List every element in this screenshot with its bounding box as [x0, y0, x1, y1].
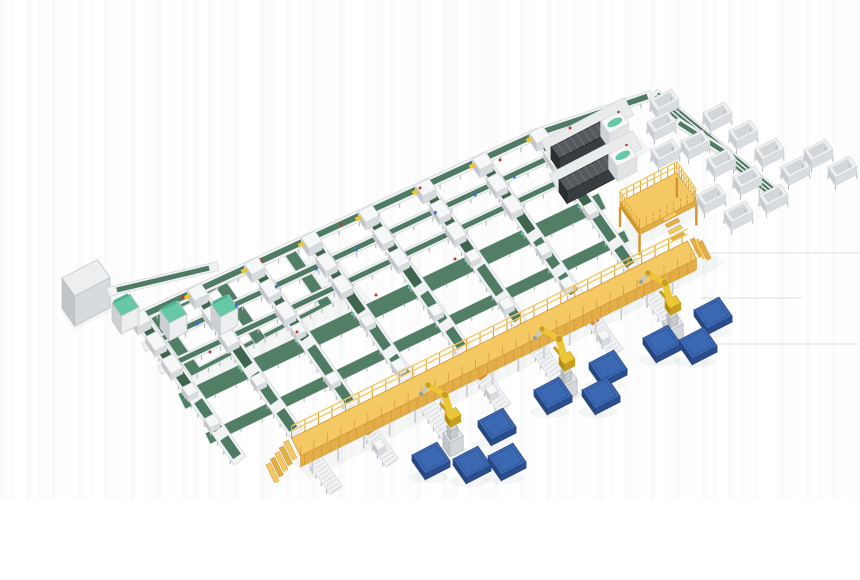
blue-pallet — [484, 443, 526, 484]
blue-pallet — [474, 408, 516, 449]
screenshot-canvas: 3D render of automated conveyor sorting … — [0, 0, 860, 580]
factory-layout-render: 3D render of automated conveyor sorting … — [0, 0, 860, 580]
